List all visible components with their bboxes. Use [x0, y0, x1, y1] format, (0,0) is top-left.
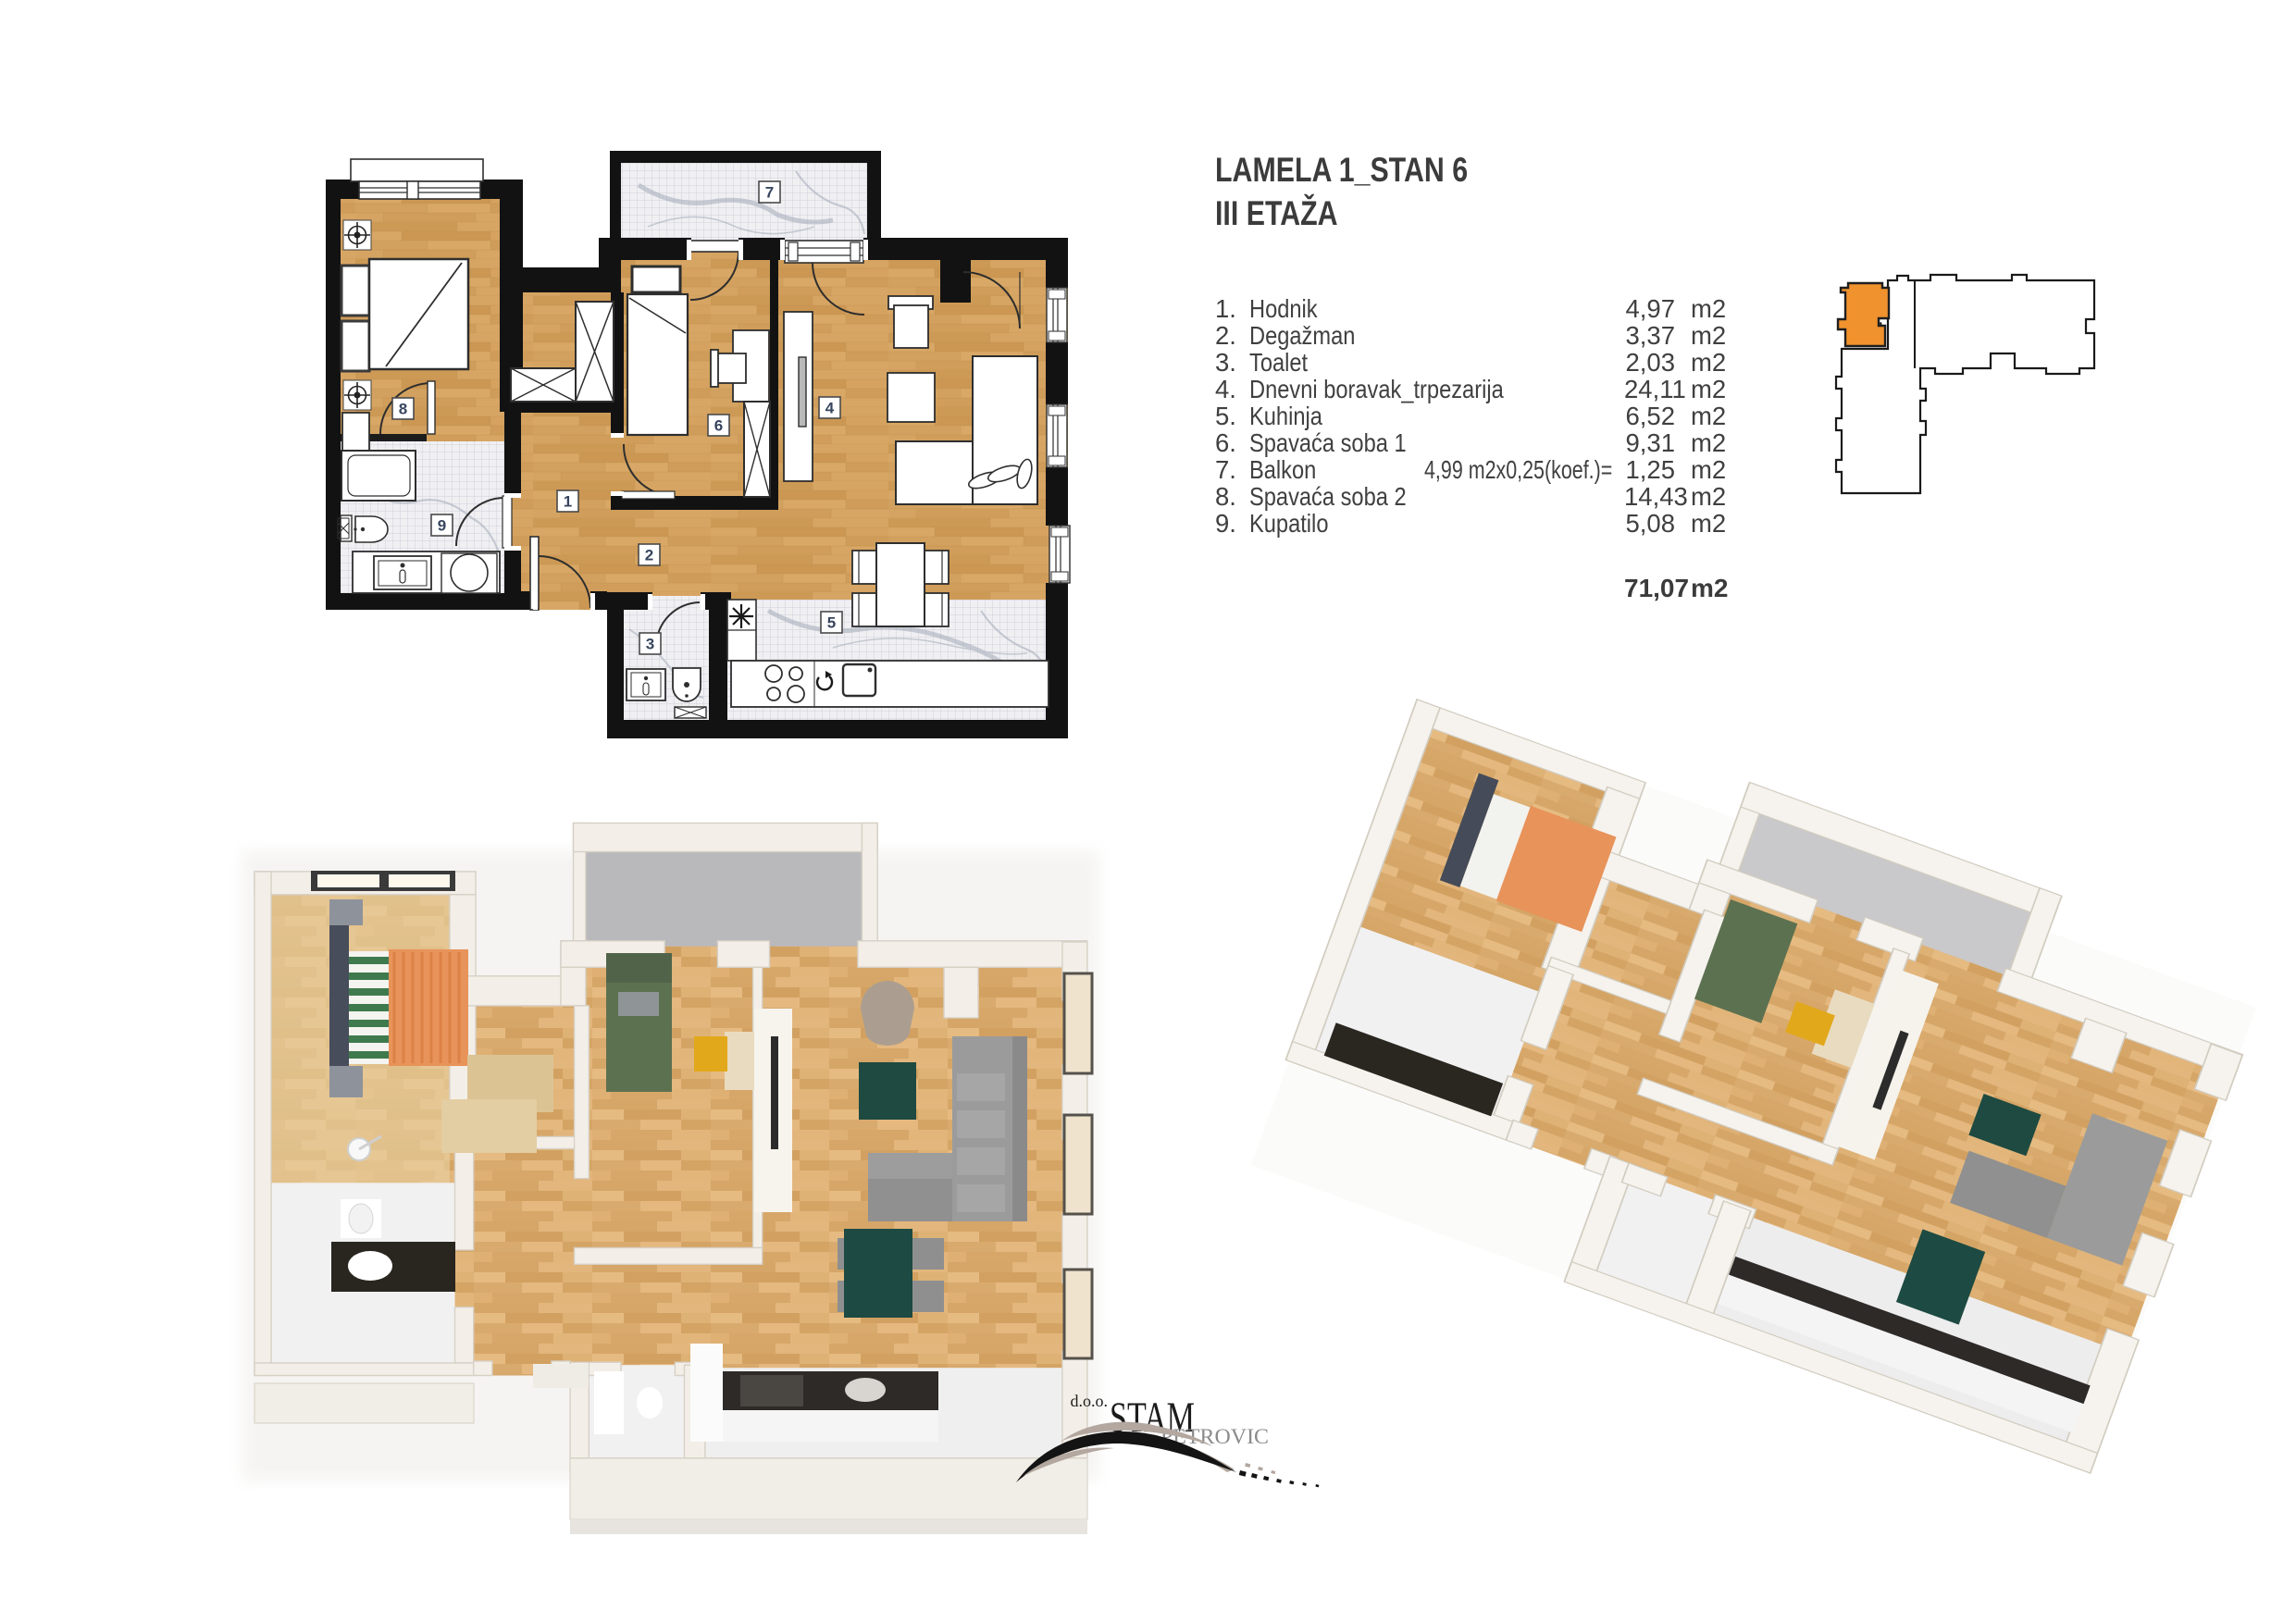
- svg-text:3: 3: [646, 636, 654, 653]
- svg-text:2: 2: [645, 547, 653, 564]
- svg-text:1: 1: [564, 493, 572, 511]
- svg-text:4: 4: [825, 400, 835, 417]
- svg-text:5: 5: [827, 614, 836, 632]
- svg-text:6: 6: [714, 417, 723, 435]
- svg-text:d.o.o.: d.o.o.: [1071, 1392, 1109, 1410]
- svg-text:8: 8: [399, 401, 407, 418]
- svg-text:7: 7: [765, 184, 774, 202]
- svg-text:9: 9: [438, 517, 446, 535]
